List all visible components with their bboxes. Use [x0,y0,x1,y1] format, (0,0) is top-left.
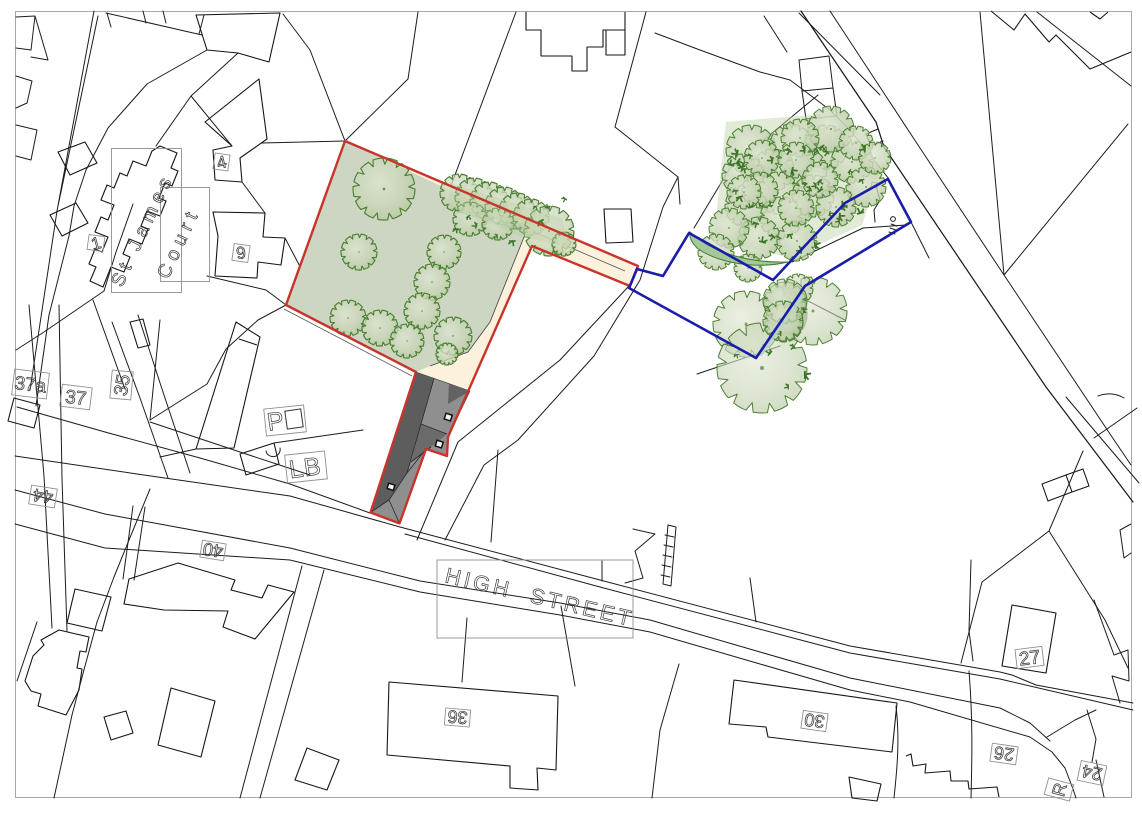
svg-text:36: 36 [447,706,469,728]
svg-text:44: 44 [32,485,55,508]
svg-text:35: 35 [111,373,135,397]
svg-text:27: 27 [1018,647,1042,670]
svg-text:26: 26 [993,742,1016,765]
svg-text:30: 30 [803,709,826,732]
svg-text:LB: LB [287,452,323,484]
svg-text:24: 24 [1080,761,1104,785]
svg-text:40: 40 [202,539,225,562]
svg-text:37: 37 [64,387,88,410]
svg-text:37a: 37a [13,373,47,398]
